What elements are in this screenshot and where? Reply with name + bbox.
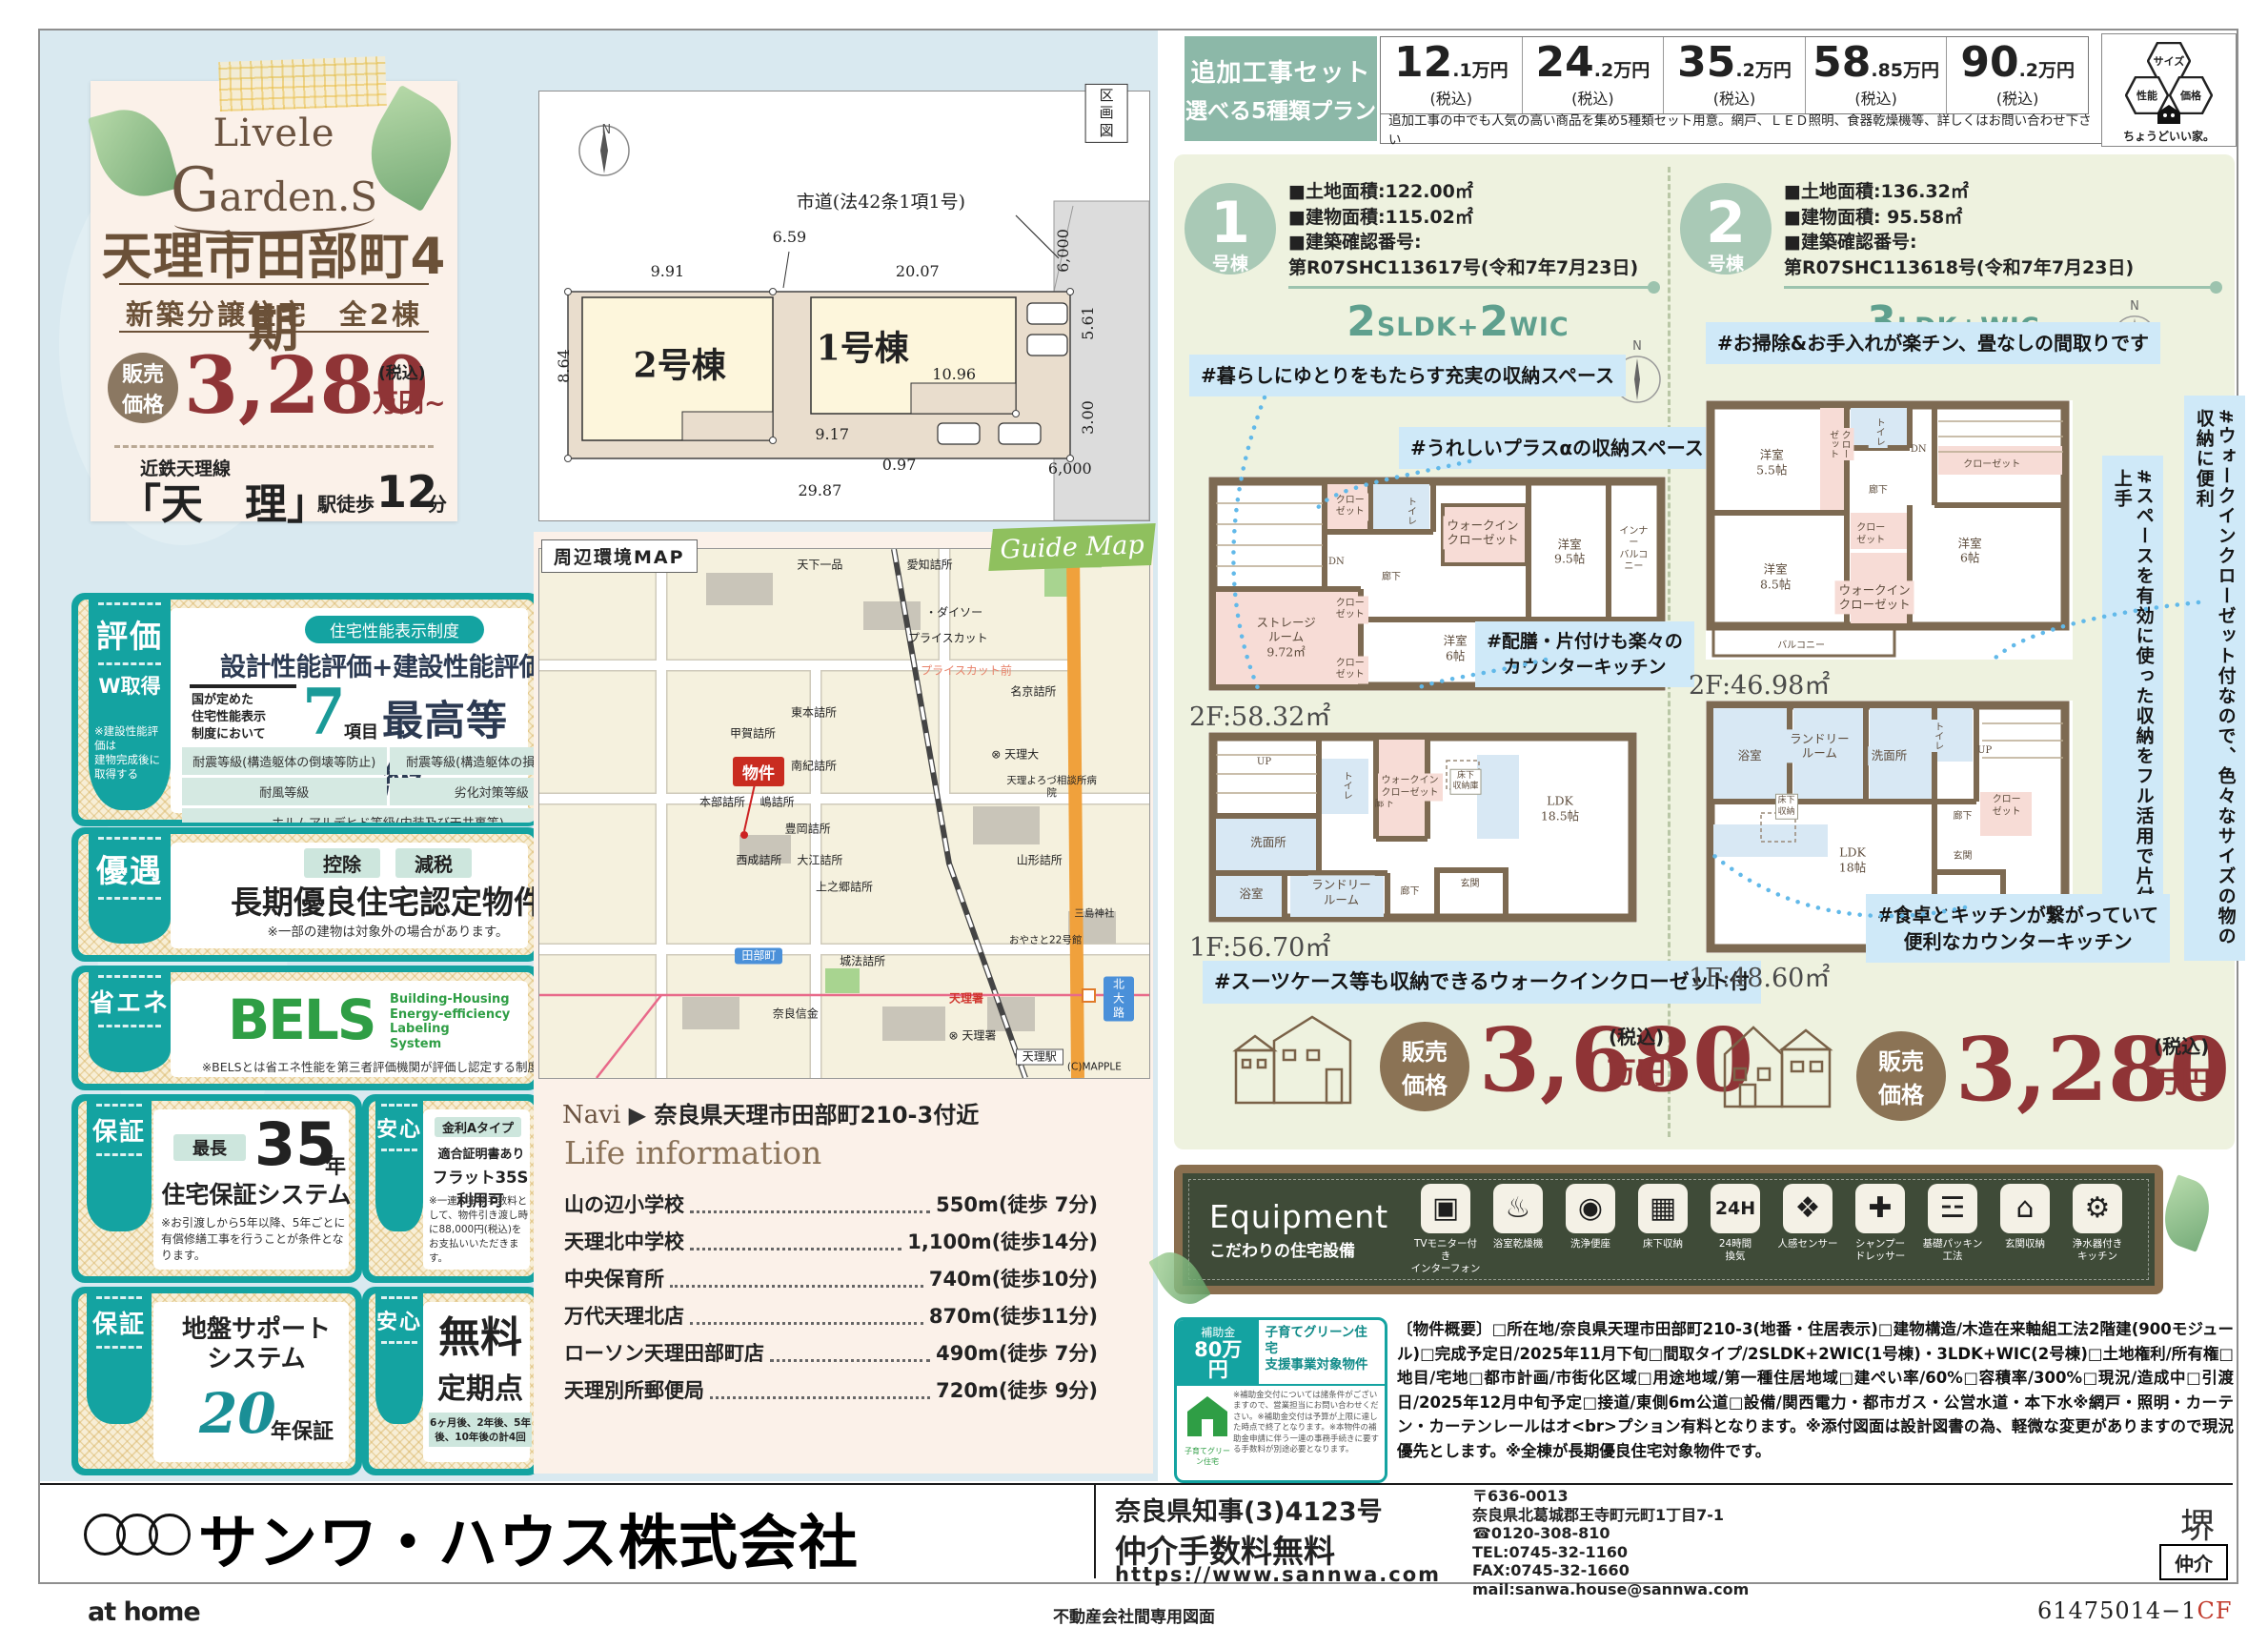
plot-label: 6,000 <box>1048 459 1092 478</box>
flat-note: ※一連の事務手数料として、物件引き渡し時に88,000円(税込)をお支払いいただ… <box>429 1193 530 1265</box>
flat35s-box: 安心 金利Aタイプ 適合証明書あり フラット35S利用可 ※一連の事務手数料とし… <box>362 1094 541 1283</box>
anshin-tenken-tab: 安心 <box>375 1305 423 1335</box>
room-label: DN <box>1911 443 1927 456</box>
company-url[interactable]: https://www.sannwa.com <box>1115 1563 1441 1586</box>
equipment-subtitle: こだわりの住宅設備 <box>1209 1237 1409 1261</box>
shampoo-dresser-icon: ✚ <box>1855 1184 1905 1233</box>
spec-line: ■建築確認番号: <box>1288 230 1670 255</box>
building1-sale-badge: 販売 価格 <box>1380 1022 1469 1111</box>
addon-price-cell: 12.1万円(税込) <box>1381 37 1523 113</box>
building1-layout: 2SLDK+2WIC <box>1267 297 1649 346</box>
energy-box: 省エネ BELS Building-Housing Energy-efficie… <box>71 966 541 1090</box>
room-label: トイレ <box>1869 416 1889 448</box>
bels-logo: BELS <box>228 992 375 1047</box>
plot-label: N <box>602 122 612 137</box>
plot-label: 20.07 <box>896 262 940 281</box>
addon-price-cell: 24.2万円(税込) <box>1523 37 1665 113</box>
room-label: UP <box>1977 745 1992 758</box>
room-label: 廊下 <box>1382 572 1401 584</box>
map-tab: 周辺環境MAP <box>541 539 698 573</box>
map-label: ⊗ 天理大 <box>991 748 1039 762</box>
equipment-item: ❖人感センサー <box>1772 1184 1844 1275</box>
room-label: 洋室 6帖 <box>1958 536 1982 565</box>
equipment-item: ♨浴室乾燥機 <box>1482 1184 1554 1275</box>
room-label: 浴室 <box>1734 746 1766 765</box>
benefit-pill: 控除 <box>304 848 380 878</box>
building2-annotation: #食卓とキッチンが繋がっていて 便利なカウンターキッチン <box>1866 894 2170 963</box>
tenken-headline1: 無料 <box>431 1317 530 1359</box>
room-label: クロー ゼット <box>1822 428 1853 460</box>
building2-2f-area: 2F:46.98㎡ <box>1689 664 1830 701</box>
tape-decoration <box>218 56 387 112</box>
building1-annotation: #暮らしにゆとりをもたらす充実の収納スペース <box>1189 355 1626 396</box>
building1-floorplan-1f: UPトイレ廊下ウォークイン クローゼット床下 収納庫LDK 18.5帖洗面所浴室… <box>1208 732 1637 923</box>
inspection-box: 安心 無料 定期点検 6ヶ月後、2年後、5年後、10年後の計4回 <box>362 1287 541 1475</box>
addon-price-cell: 35.2万円(税込) <box>1664 37 1806 113</box>
map-label: プライスカット <box>908 632 988 646</box>
building2-specs: ■土地面積:136.32㎡■建物面積: 95.58㎡■建築確認番号:第R07SH… <box>1784 179 2184 280</box>
plot-label: 6.59 <box>773 228 807 247</box>
life-item: 天理別所郵便局720m(徒歩 9分) <box>564 1375 1098 1404</box>
equipment-item: ☲基礎パッキン 工法 <box>1916 1184 1989 1275</box>
building1-price-unit: 万円 <box>1607 1048 1666 1091</box>
addon-price-strip: 12.1万円(税込)24.2万円(税込)35.2万円(税込)58.85万円(税込… <box>1380 36 2089 114</box>
building2-annotation: #お掃除&お手入れが楽チン、畳なしの間取りです <box>1706 322 2160 364</box>
equipment-label: 24時間 換気 <box>1719 1238 1752 1263</box>
hexagon-size: サイズ <box>2147 42 2191 80</box>
equipment-label: 基礎パッキン 工法 <box>1923 1238 1983 1263</box>
building2-annotation-vertical: #ウォークインクローゼット付なので、色々なサイズの物の収納に便利 <box>2184 396 2245 961</box>
room-label: クロー ゼット <box>1332 656 1368 683</box>
plot-label: 5.61 <box>1079 306 1098 340</box>
room-label: UP <box>1257 757 1271 769</box>
sale-price-badge: 販売 価格 <box>108 353 178 423</box>
hosho35-headline: 住宅保証システム <box>161 1176 352 1210</box>
property-overview: 〔物件概要〕□所在地/奈良県天理市田部町210-3(地番・住居表示)□建物構造/… <box>1397 1317 2234 1477</box>
company-name: サンワ・ハウス株式会社 <box>198 1494 859 1580</box>
plot-label: 0.97 <box>882 456 917 475</box>
property-subtitle: 新築分譲住宅 全2棟 <box>91 293 457 333</box>
washlet-icon: ◉ <box>1566 1184 1615 1233</box>
rating-grid-cell: 耐震等級(構造躯体の倒壊等防止) <box>182 747 387 775</box>
house-icon <box>2157 105 2180 124</box>
room-label: LDK 18帖 <box>1839 844 1866 874</box>
room-label: 床下 収納 <box>1775 794 1798 820</box>
hosho20-unit: 年保証 <box>271 1414 334 1445</box>
map-label: (C)MAPPLE <box>1067 1061 1122 1073</box>
rating-tab-note: ※建設性能評価は 建物完成後に 取得する <box>89 724 171 782</box>
room-label: トイレ <box>1927 720 1947 752</box>
equipment-board: Equipment こだわりの住宅設備 ▣TVモニター付き インターフォン♨浴室… <box>1174 1165 2163 1294</box>
building1-specs: ■土地面積:122.00㎡■建物面積:115.02㎡■建築確認番号:第R07SH… <box>1288 179 1670 280</box>
rating-grid-cell: 耐風等級 <box>182 778 387 805</box>
plot-label: 市道(法42条1項1号) <box>797 192 965 214</box>
room-label: クロー ゼット <box>1989 793 2025 821</box>
price-unit: 万円~ <box>373 382 446 419</box>
equipment-label: 床下収納 <box>1643 1238 1683 1250</box>
map-label: 豊岡詰所 <box>785 823 831 837</box>
subsidy-amount: 80万円 <box>1185 1340 1251 1380</box>
equipment-label: シャンプー ドレッサー <box>1855 1238 1906 1263</box>
company-address: 〒636-0013 奈良県北葛城郡王寺町元町1丁目7-1 ☎0120-308-8… <box>1472 1487 1749 1598</box>
equipment-label: 浴室乾燥機 <box>1493 1238 1544 1250</box>
spec-line: 第R07SHC113617号(令和7年7月23日) <box>1288 255 1670 281</box>
room-label: ランドリー ルーム <box>1307 875 1375 908</box>
room-label: クロー ゼット <box>1332 493 1368 520</box>
walk-prefix: 駅徒歩 <box>317 489 375 517</box>
room-label: 洋室 5.5帖 <box>1756 448 1787 478</box>
building2-annotation-vertical: #スペースを有効に使った収納をフル活用で片付け上手 <box>2102 456 2163 959</box>
warranty35-box: 保証 最長 35 年 住宅保証システム ※お引渡しから5年以降、5年ごとに有償修… <box>71 1094 362 1283</box>
room-label: ランドリー ルーム <box>1786 729 1853 762</box>
room-label: クロー ゼット <box>1853 521 1889 549</box>
equipment-item: 24H24時間 換気 <box>1699 1184 1772 1275</box>
map-label: 本部詰所 <box>699 796 745 810</box>
life-information-list: 山の辺小学校550m(徒歩 7分)天理北中学校1,100m(徒歩14分)中央保育… <box>564 1189 1098 1413</box>
house-illustration <box>1715 1016 1839 1111</box>
equipment-item: ✚シャンプー ドレッサー <box>1844 1184 1916 1275</box>
yugu-tab-label: 優遇 <box>89 845 171 891</box>
foundation-packing-icon: ☲ <box>1928 1184 1977 1233</box>
room-label: 廊下 <box>1869 485 1888 498</box>
equipment-item: ▦床下収納 <box>1627 1184 1699 1275</box>
map-label: 嶋詰所 <box>760 796 795 810</box>
plot-label: 10.96 <box>932 365 976 384</box>
stamp-sakai: 堺 <box>2180 1498 2215 1548</box>
equipment-item: ⚙浄水器付き キッチン <box>2061 1184 2134 1275</box>
map-label: 上之郷詰所 <box>816 881 873 895</box>
map-label: おやさと22号館 <box>1009 934 1082 946</box>
room-label: LDK 18.5帖 <box>1541 793 1579 823</box>
addon-note: 追加工事の中でも人気の高い商品を集め5種類セット用意。網戸、ＬＥＤ照明、食器乾燥… <box>1380 114 2104 144</box>
plot-label: 29.87 <box>798 481 841 500</box>
logo-tagline: ちょうどいい家。 <box>2102 128 2236 144</box>
plot-plan: N区画図市道(法42条1項1号)9.916.5920.078.645.6110.… <box>538 91 1150 521</box>
map-label: 天理署 <box>949 991 983 1006</box>
room-label: トイレ <box>1336 769 1356 802</box>
subsidy-house-caption: 子育てグリーン住宅 <box>1182 1446 1233 1467</box>
map-label: 名京詰所 <box>1010 684 1056 699</box>
bels-logo-subtext: Building-Housing Energy-efficiency Label… <box>390 992 510 1051</box>
rating-tab-label: 評価 <box>89 611 171 657</box>
station-name: 「天 理」 <box>119 470 329 531</box>
equipment-label: 人感センサー <box>1778 1238 1838 1250</box>
green-house-icon <box>1185 1394 1229 1438</box>
addon-subtitle: 選べる5種類プラン <box>1185 92 1376 125</box>
room-label: 玄関 <box>1461 879 1480 891</box>
equipment-item: ◉洗浄便座 <box>1554 1184 1627 1275</box>
bathroom-dryer-icon: ♨ <box>1493 1184 1543 1233</box>
spec-line: ■土地面積:122.00㎡ <box>1288 179 1670 205</box>
life-item: 天理北中学校1,100m(徒歩14分) <box>564 1227 1098 1255</box>
footer-code: 61475014−1CF <box>2037 1597 2233 1624</box>
plot-label: 6,000 <box>1054 229 1073 273</box>
building2-price-unit: 万円 <box>2152 1058 2211 1101</box>
rating-grid-cell: 耐震等級(構造躯体の損傷防止) <box>390 747 542 775</box>
plot-label: 区画図 <box>1085 83 1128 142</box>
map-label: 奈良信金 <box>773 1007 819 1022</box>
rating-grid: 耐震等級(構造躯体の倒壊等防止)耐震等級(構造躯体の損傷防止)耐風等級劣化対策等… <box>182 747 541 826</box>
motion-sensor-icon: ❖ <box>1783 1184 1833 1233</box>
map-label: 愛知詰所 <box>907 558 953 572</box>
broker-type-box: 仲介 <box>2159 1544 2228 1580</box>
subsidy-title: 子育てグリーン住宅 支援事業対象物件 <box>1259 1320 1385 1384</box>
tv-monitor-interphone-icon: ▣ <box>1421 1184 1470 1233</box>
map-label: 山形詰所 <box>1017 854 1063 868</box>
preferential-box: 優遇 控除減税 長期優良住宅認定物件 ※一部の建物は対象外の場合があります。 <box>71 827 541 962</box>
hosho35-tab: 保証 <box>87 1112 152 1148</box>
choudoii-ie-logo: サイズ 性能 価格 ちょうどいい家。 <box>2101 33 2237 147</box>
underfloor-storage-icon: ▦ <box>1638 1184 1688 1233</box>
room-label: ウォークイン クローゼット <box>1835 580 1914 614</box>
anshin-flat-tab: 安心 <box>375 1112 423 1143</box>
rating-count: 7 <box>302 675 346 749</box>
building2-price-tax: (税込) <box>2154 1031 2209 1059</box>
room-label: クローゼット <box>1959 457 2024 474</box>
map-label: 甲賀詰所 <box>730 727 776 742</box>
navi-address: Navi ▶ 奈良県天理市田部町210-3付近 <box>562 1096 979 1129</box>
plot-label: 2号棟 <box>634 345 726 388</box>
equipment-item: ▣TVモニター付き インターフォン <box>1409 1184 1482 1275</box>
spec-line: ■建物面積:115.02㎡ <box>1288 205 1670 231</box>
map-label: ・ダイソー <box>925 605 982 620</box>
room-label: 床下 収納庫 <box>1449 769 1481 795</box>
room-label: 洋室 9.5帖 <box>1554 537 1585 566</box>
room-label: DN <box>1328 557 1345 569</box>
rating-grid-cell: 劣化対策等級 <box>390 778 542 805</box>
room-label: インナー バルコニー <box>1618 526 1650 574</box>
logo-g: G <box>171 155 219 226</box>
building1-2f-area: 2F:58.32㎡ <box>1189 696 1330 733</box>
room-label: 玄関 <box>1954 851 1973 864</box>
map-label: 西成詰所 <box>736 854 781 868</box>
map-label: 天理駅 <box>1016 1048 1063 1065</box>
building2-1f-area: 1F:48.60㎡ <box>1689 957 1830 994</box>
hosho20-years: 20 <box>199 1386 276 1441</box>
logo-line2: arden.S <box>219 173 377 220</box>
map-label: 北大路 <box>1104 976 1134 1021</box>
yugu-note: ※一部の建物は対象外の場合があります。 <box>182 921 541 940</box>
price-tax: (税込) <box>378 359 426 383</box>
ground-warranty-box: 保証 地盤サポート システム 20 年保証 <box>71 1287 362 1475</box>
room-label: バルコニー <box>1777 640 1825 653</box>
rating-pill: 住宅性能表示制度 <box>305 616 484 643</box>
room-label: ウォークイン クローゼット <box>1443 516 1522 549</box>
map-label: 三島神社 <box>1074 907 1114 920</box>
property-marker: 物件 <box>733 757 784 786</box>
walk-suffix: 分 <box>428 489 447 517</box>
logo-line1: Livele <box>91 112 457 155</box>
room-label: クロー ゼット <box>1332 596 1368 623</box>
hosho20-tab: 保証 <box>87 1305 152 1340</box>
water-purifier-kitchen-icon: ⚙ <box>2073 1184 2122 1233</box>
addon-price-cell: 58.85万円(税込) <box>1806 37 1948 113</box>
spec-line: ■建物面積: 95.58㎡ <box>1784 205 2184 231</box>
map-label: 田部町 <box>735 948 782 965</box>
flyer-page: Livele Garden.S 天理市田部町4期 新築分譲住宅 全2棟 販売 価… <box>0 0 2268 1647</box>
map-label: ⊗ 天理署 <box>948 1028 996 1043</box>
map-label: 東本詰所 <box>791 706 837 721</box>
benefit-pill: 減税 <box>395 848 472 878</box>
building1-price-tax: (税込) <box>1609 1022 1664 1049</box>
room-label: 洋室 8.5帖 <box>1760 561 1791 591</box>
room-label: 廊下 <box>1954 811 1973 823</box>
hosho35-pill: 最長 <box>173 1134 246 1161</box>
rating-tab-sub: W取得 <box>89 671 171 700</box>
room-label: 洋室 6帖 <box>1444 633 1468 662</box>
life-item: 万代天理北店870m(徒歩11分) <box>564 1301 1098 1330</box>
company-logo-icon <box>84 1514 181 1555</box>
room-label: 廊下 <box>1401 886 1420 899</box>
plot-label: 3.00 <box>1079 400 1098 435</box>
bels-note: ※BELSとは省エネ性能を第三者評価機関が評価し認定する制度です。 <box>182 1057 541 1075</box>
addon-title: 追加工事セット <box>1190 53 1370 89</box>
building2-floorplan-2f: 洋室 5.5帖クロー ゼットトイレDNクローゼット廊下クロー ゼット洋室 6帖ウ… <box>1706 400 2073 660</box>
spec-line: 第R07SHC113618号(令和7年7月23日) <box>1784 255 2184 281</box>
life-item: ローソン天理田部町店490m(徒歩 7分) <box>564 1338 1098 1367</box>
life-information-title: Life information <box>564 1134 821 1171</box>
room-label: 浴室 <box>1235 884 1266 904</box>
map-labels: 天下一品愛知詰所山の辺小学校・ダイソープライスカットプライスカット前名京詰所東本… <box>539 549 1149 1078</box>
shoene-tab-label: 省エネ <box>89 984 171 1019</box>
rating-pre: 国が定めた 住宅性能表示 制度において <box>190 684 296 752</box>
equipment-label: TVモニター付き インターフォン <box>1409 1238 1482 1275</box>
subsidy-badge: 補助金80万円 子育てグリーン住宅 支援事業対象物件 子育てグリーン住宅 ※補助… <box>1174 1317 1387 1483</box>
footer-note: 不動産会社間専用図面 <box>0 1603 2268 1627</box>
equipment-item: ⌂玄関収納 <box>1989 1184 2061 1275</box>
room-label: トイレ <box>1400 495 1420 527</box>
map-label: 天下一品 <box>797 558 842 572</box>
building1-annotation: #スーツケース等も収納できるウォークインクローゼット付 <box>1203 961 1761 1004</box>
spec-line: ■土地面積:136.32㎡ <box>1784 179 2184 205</box>
rating-headline: 設計性能評価+建設性能評価 <box>182 646 541 683</box>
life-item: 山の辺小学校550m(徒歩 7分) <box>564 1189 1098 1218</box>
rating-count-unit: 項目 <box>344 719 378 743</box>
plot-label: 1号棟 <box>817 328 909 371</box>
room-label: 洗面所 <box>1246 833 1290 852</box>
yugu-pills: 控除減税 <box>182 848 541 878</box>
equipment-items: ▣TVモニター付き インターフォン♨浴室乾燥機◉洗浄便座▦床下収納24H24時間… <box>1409 1184 2155 1275</box>
building1-badge: 1 号棟 <box>1185 183 1276 274</box>
layout-segment: 2 <box>1347 297 1377 346</box>
area-map: 天下一品愛知詰所山の辺小学校・ダイソープライスカットプライスカット前名京詰所東本… <box>538 548 1150 1079</box>
plot-label: 9.17 <box>815 425 849 444</box>
layout-segment: 2 <box>1479 297 1509 346</box>
map-label: 大江詰所 <box>797 854 842 868</box>
equipment-title: Equipment <box>1209 1198 1409 1235</box>
hosho20-headline: 地盤サポート システム <box>161 1315 352 1374</box>
house-illustration <box>1222 1012 1365 1108</box>
building2-badge: 2 号棟 <box>1680 183 1772 274</box>
map-panel: 天下一品愛知詰所山の辺小学校・ダイソープライスカットプライスカット前名京詰所東本… <box>534 532 1153 1474</box>
building1-1f-area: 1F:56.70㎡ <box>1189 926 1330 964</box>
guide-map-ribbon: Guide Map <box>988 523 1155 571</box>
rating-grid-cell: ホルムアルデヒド等級(内装及び天井裏等) <box>182 808 541 826</box>
spec-line: ■建築確認番号: <box>1784 230 2184 255</box>
map-label: 天理よろづ相談所病院 <box>1002 775 1100 800</box>
entrance-storage-icon: ⌂ <box>2000 1184 2050 1233</box>
plot-label: 9.91 <box>651 262 685 281</box>
equipment-label: 玄関収納 <box>2005 1238 2045 1250</box>
flat-line2: 適合証明書あり <box>433 1144 530 1162</box>
room-label: ウォークイン クローゼット <box>1378 774 1443 802</box>
map-label: 城法詰所 <box>840 954 885 968</box>
subsidy-note: ※補助金交付については諸条件がございますので、営業担当にお問い合わせください。※… <box>1233 1391 1380 1467</box>
addon-price-cell: 90.2万円(税込) <box>1947 37 2088 113</box>
flat-line1: 金利Aタイプ <box>435 1117 521 1137</box>
building2-sale-badge: 販売 価格 <box>1856 1031 1946 1121</box>
plot-labels: N区画図市道(法42条1項1号)9.916.5920.078.645.6110.… <box>539 91 1149 520</box>
tenken-note: 6ヶ月後、2年後、5年後、10年後の計4回 <box>429 1413 532 1447</box>
equipment-label: 浄水器付き キッチン <box>2073 1238 2123 1263</box>
rating-box: 評価 W取得 ※建設性能評価は 建物完成後に 取得する 住宅性能表示制度 設計性… <box>71 593 541 826</box>
equipment-label: 洗浄便座 <box>1570 1238 1610 1250</box>
company-license: 奈良県知事(3)4123号 <box>1115 1491 1383 1528</box>
map-label: 南紀詰所 <box>791 759 837 773</box>
life-item: 中央保育所740m(徒歩10分) <box>564 1264 1098 1292</box>
building1-annotation: #配膳・片付けも楽々の カウンターキッチン <box>1475 621 1694 687</box>
addon-header: 追加工事セット 選べる5種類プラン <box>1185 36 1377 141</box>
layout-segment: + <box>1457 313 1480 342</box>
room-label: 洗面所 <box>1868 746 1912 765</box>
yugu-headline: 長期優良住宅認定物件 <box>182 877 541 923</box>
map-label: プライスカット前 <box>921 663 1012 678</box>
layout-segment: SLDK <box>1377 313 1457 342</box>
plot-label: 8.64 <box>555 349 574 383</box>
hero-card: Livele Garden.S 天理市田部町4期 新築分譲住宅 全2棟 販売 価… <box>91 81 457 521</box>
building1-annotation: #うれしいプラスαの収納スペース <box>1399 427 1715 469</box>
layout-segment: WIC <box>1509 313 1569 342</box>
ventilation-24h-icon: 24H <box>1711 1184 1760 1233</box>
hosho35-note: ※お引渡しから5年以降、5年ごとに有償修繕工事を行うことが条件となります。 <box>161 1214 347 1263</box>
room-label: ストレージ ルーム 9.72㎡ <box>1252 613 1319 661</box>
